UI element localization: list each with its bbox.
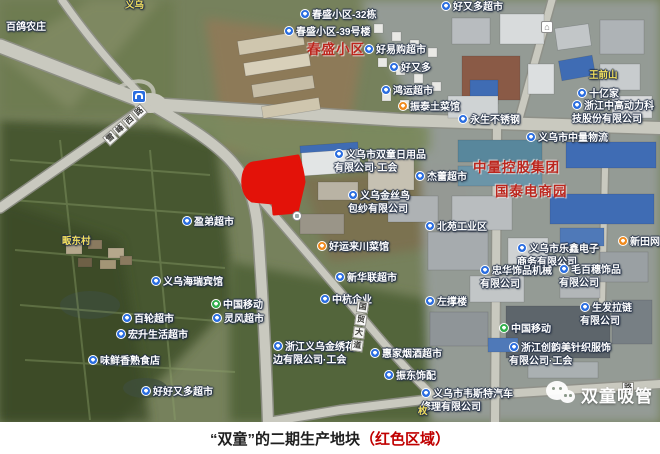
poi-label-text: 春盛小区-39号楼 (296, 27, 370, 38)
map-poi-label[interactable]: 左撑楼 (425, 296, 467, 310)
poi-label-text: 好又多 (401, 63, 431, 74)
poi-label-text: 百鸽农庄 (6, 22, 46, 33)
poi-label-text: 振泰土菜馆 (410, 102, 460, 113)
poi-label-text: 王前山 (589, 70, 618, 81)
map-poi-label[interactable]: 浙江义乌金绣花 边有限公司·工会 (273, 341, 355, 367)
poi-icon (499, 323, 509, 333)
poi-label-text: 中量控股集团 (473, 160, 560, 175)
poi-icon (335, 272, 345, 282)
poi-icon (580, 302, 590, 312)
map-poi-label[interactable]: 新田网咖 (618, 236, 660, 250)
map-poi-label[interactable]: 中量控股集团 (473, 160, 560, 177)
map-poi-label[interactable]: 北苑工业区 (425, 221, 487, 235)
poi-label-text: 好易购超市 (376, 45, 426, 56)
map-poi-label[interactable]: 忠华饰品机械 有限公司 (480, 265, 552, 291)
map-poi-label[interactable]: 枚 (418, 406, 428, 418)
poi-icon (88, 355, 98, 365)
map-poi-label[interactable]: 盈弟超市 (182, 216, 234, 230)
poi-icon (425, 296, 435, 306)
poi-label-text: 味鲜香熟食店 (100, 356, 160, 367)
poi-icon (509, 342, 519, 352)
map-poi-label[interactable]: 义乌 (125, 0, 144, 12)
poi-label-text: 新华联超市 (347, 273, 397, 284)
poi-label-text: 北苑工业区 (437, 222, 487, 233)
poi-label-text: 好又多超市 (453, 2, 503, 13)
poi-label-text: 灵风超市 (224, 314, 264, 325)
map-poi-label[interactable]: 畈东村 (62, 236, 91, 248)
watermark-text: 双童吸管 (581, 382, 653, 407)
poi-icon (425, 221, 435, 231)
road-sign-icon (132, 90, 146, 103)
poi-label-text: 浙江义乌金绣花 边有限公司·工会 (273, 342, 355, 366)
poi-label-text: 永生不锈钢 (470, 115, 520, 126)
map-poi-label[interactable]: 好好又多超市 (141, 386, 213, 400)
poi-label-text: 义乌 (125, 0, 144, 11)
map-poi-label[interactable]: 好运来川菜馆 (317, 241, 389, 255)
poi-icon (415, 171, 425, 181)
poi-icon (141, 386, 151, 396)
map-poi-label[interactable]: 百鸽农庄 (6, 22, 46, 35)
map-poi-label[interactable]: 义乌金丝鸟 包纱有限公司 (348, 190, 410, 216)
poi-label-text: 畈东村 (62, 236, 91, 247)
poi-icon (384, 370, 394, 380)
map-poi-label[interactable]: 王前山 (589, 70, 618, 82)
poi-label-text: 鸿运超市 (393, 86, 433, 97)
map-poi-label[interactable]: 杰蕾超市 (415, 171, 467, 185)
poi-label-text: 浙江中高动力科 技股份有限公司 (572, 101, 654, 125)
map-poi-label[interactable]: 惠家烟酒超市 (370, 348, 442, 362)
map-poi-label[interactable]: 义乌海瑞宾馆 (151, 276, 223, 290)
map-poi-label[interactable]: 味鲜香熟食店 (88, 355, 160, 369)
poi-icon (273, 341, 283, 351)
wechat-icon (546, 381, 576, 407)
poi-icon (577, 88, 587, 98)
landmark-icon: ⌂ (541, 21, 553, 33)
map-poi-label[interactable]: 义乌市中量物流 (526, 132, 608, 146)
poi-icon (116, 329, 126, 339)
poi-icon (526, 132, 536, 142)
map-poi-label[interactable]: 义乌市双童日用品 有限公司·工会 (334, 149, 426, 175)
map-poi-label[interactable]: 义乌市韦斯特汽车 修理有限公司 (421, 388, 513, 414)
map-poi-label[interactable]: 宏升生活超市 (116, 329, 188, 343)
poi-label-text: 春盛小区 (307, 42, 365, 57)
poi-icon (618, 236, 628, 246)
poi-icon (421, 388, 431, 398)
poi-label-text: 义乌市中量物流 (538, 133, 608, 144)
map-poi-label[interactable]: 好又多 (389, 62, 431, 76)
wechat-watermark: 双童吸管 (546, 381, 653, 407)
map-poi-label[interactable]: 新华联超市 (335, 272, 397, 286)
poi-label-text: 百轮超市 (134, 314, 174, 325)
poi-icon (151, 276, 161, 286)
poi-icon (364, 44, 374, 54)
poi-icon (441, 1, 451, 11)
map-labels-layer: 百鸽农庄义乌春盛小区-32栋春盛小区-39号楼春盛小区好易购超市好又多超市好又多… (0, 0, 660, 422)
map-poi-label[interactable]: 好易购超市 (364, 44, 426, 58)
poi-icon (320, 294, 330, 304)
caption-highlight: （红色区域） (360, 428, 450, 449)
map-poi-label[interactable]: 百轮超市 (122, 313, 174, 327)
map-poi-label[interactable]: 鸿运超市 (381, 85, 433, 99)
poi-label-text: 盈弟超市 (194, 217, 234, 228)
road-name-label: 雪峰西路 (102, 103, 148, 146)
poi-label-text: 惠家烟酒超市 (382, 349, 442, 360)
poi-label-text: 春盛小区-32栋 (312, 10, 376, 21)
map-poi-label[interactable]: 中国移动 (499, 323, 551, 337)
map-poi-label[interactable]: 永生不锈钢 (458, 114, 520, 128)
poi-icon (317, 241, 327, 251)
poi-label-text: 义乌海瑞宾馆 (163, 277, 223, 288)
map-poi-label[interactable]: 中国移动 (211, 299, 263, 313)
poi-label-text: 宏升生活超市 (128, 330, 188, 341)
poi-label-text: 左撑楼 (437, 297, 467, 308)
poi-icon (348, 190, 358, 200)
map-poi-label[interactable]: 春盛小区 (307, 42, 365, 59)
poi-label-text: 好运来川菜馆 (329, 242, 389, 253)
map-poi-label[interactable]: 好又多超市 (441, 1, 503, 15)
poi-icon (458, 114, 468, 124)
road-name-label: 国贸大道 (350, 300, 369, 352)
poi-label-text: 枚 (418, 406, 428, 417)
poi-label-text: 义乌市双童日用品 有限公司·工会 (334, 150, 426, 174)
poi-label-text: 忠华饰品机械 有限公司 (480, 266, 552, 290)
map-poi-label[interactable]: 春盛小区-39号楼 (284, 26, 370, 40)
map-poi-label[interactable]: 春盛小区-32栋 (300, 9, 376, 23)
poi-icon (572, 100, 582, 110)
map-poi-label[interactable]: 国泰电商园 (495, 184, 568, 201)
map-poi-label[interactable]: 振泰土菜馆 (398, 101, 460, 115)
poi-icon (559, 264, 569, 274)
poi-label-text: 义乌市韦斯特汽车 修理有限公司 (421, 389, 513, 413)
poi-icon (212, 313, 222, 323)
map-marker-icon (292, 211, 302, 221)
map-poi-label[interactable]: 生发拉链 有限公司 (580, 302, 632, 328)
poi-label-text: 国泰电商园 (495, 184, 568, 199)
poi-label-text: 浙江创韵美针织服饰 有限公司·工会 (509, 343, 611, 367)
poi-icon (122, 313, 132, 323)
poi-icon (182, 216, 192, 226)
caption-bar: “双童”的二期生产地块（红色区域） (0, 422, 660, 454)
poi-icon (300, 9, 310, 19)
poi-label-text: 新田网咖 (630, 237, 660, 248)
map-poi-label[interactable]: 浙江中高动力科 技股份有限公司 (572, 100, 654, 126)
map-poi-label[interactable]: 毛百穗饰品 有限公司 (559, 264, 621, 290)
poi-icon (284, 26, 294, 36)
poi-icon (334, 149, 344, 159)
poi-icon (517, 243, 527, 253)
poi-label-text: 中国移动 (511, 324, 551, 335)
poi-label-text: 杰蕾超市 (427, 172, 467, 183)
poi-label-text: 振东饰配 (396, 371, 436, 382)
poi-icon (480, 265, 490, 275)
caption-text: “双童”的二期生产地块 (210, 428, 360, 449)
poi-label-text: 好好又多超市 (153, 387, 213, 398)
poi-icon (389, 62, 399, 72)
map-poi-label[interactable]: 灵风超市 (212, 313, 264, 327)
poi-icon (381, 85, 391, 95)
poi-label-text: 中国移动 (223, 300, 263, 311)
satellite-map[interactable]: 百鸽农庄义乌春盛小区-32栋春盛小区-39号楼春盛小区好易购超市好又多超市好又多… (0, 0, 660, 422)
map-poi-label[interactable]: 浙江创韵美针织服饰 有限公司·工会 (509, 342, 611, 368)
map-poi-label[interactable]: 振东饰配 (384, 370, 436, 384)
poi-icon (211, 299, 221, 309)
poi-icon (370, 348, 380, 358)
screenshot: 百鸽农庄义乌春盛小区-32栋春盛小区-39号楼春盛小区好易购超市好又多超市好又多… (0, 0, 660, 454)
poi-icon (398, 101, 408, 111)
poi-label-text: 十亿家 (589, 89, 619, 100)
